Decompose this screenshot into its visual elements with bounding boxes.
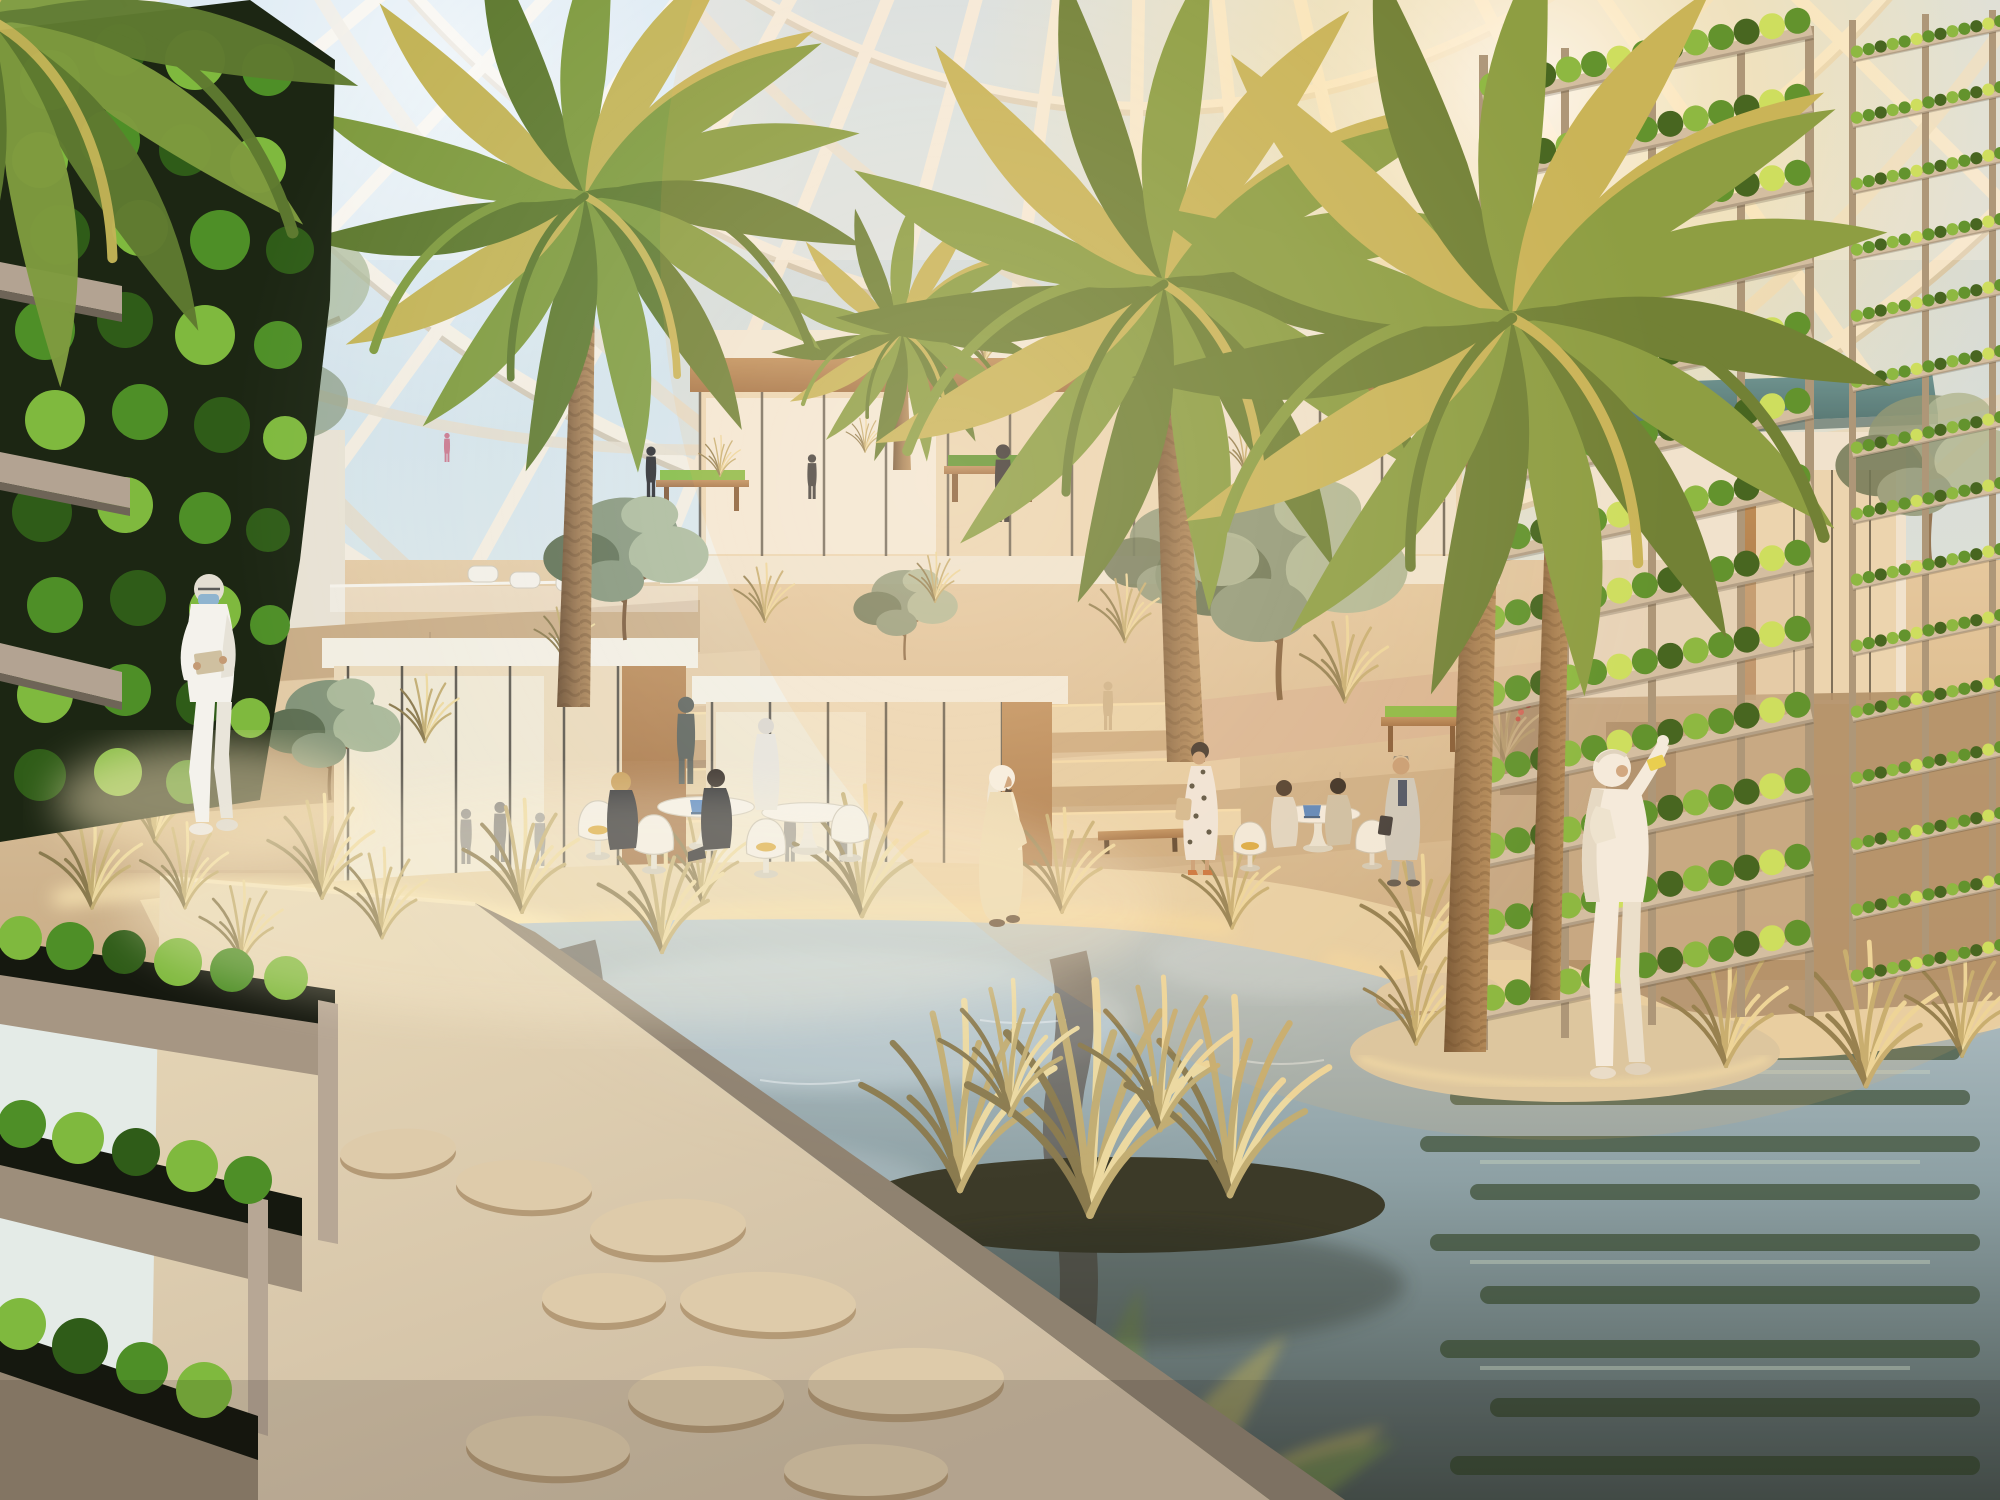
rendering-canvas bbox=[0, 0, 2000, 1500]
vignette-bottom bbox=[0, 1380, 2000, 1500]
oasis-scene bbox=[0, 0, 2000, 1500]
